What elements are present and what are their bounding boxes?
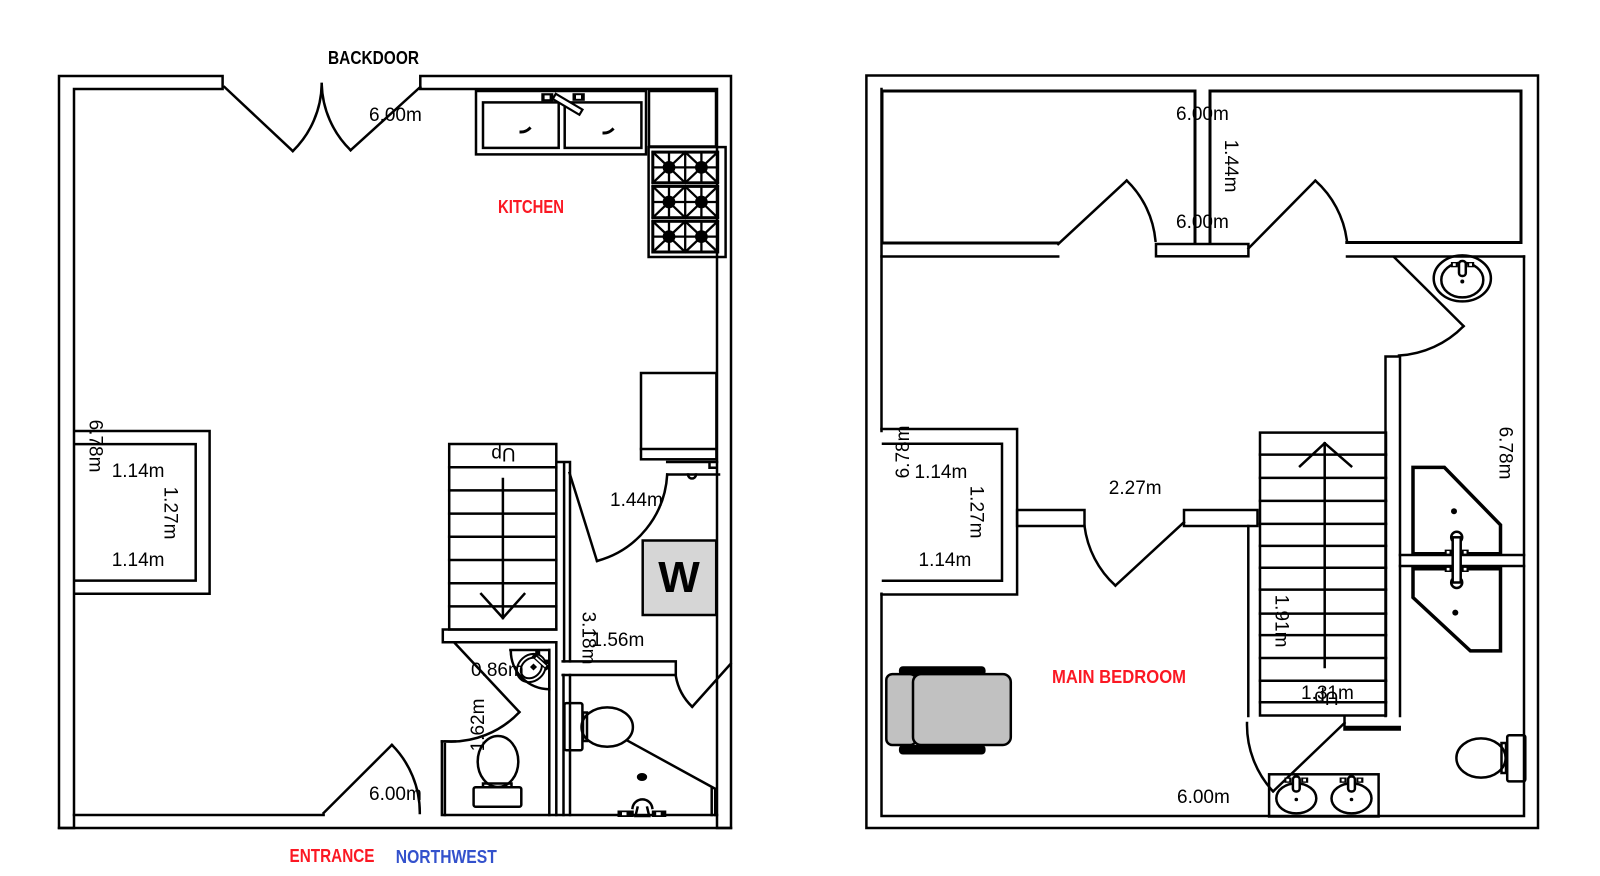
svg-text:0.86m: 0.86m bbox=[471, 660, 524, 681]
svg-text:6.78m: 6.78m bbox=[893, 426, 914, 479]
svg-text:Up: Up bbox=[491, 443, 515, 464]
svg-text:1.56m: 1.56m bbox=[592, 630, 645, 651]
svg-text:1.14m: 1.14m bbox=[919, 550, 972, 571]
svg-text:Up: Up bbox=[1314, 687, 1338, 708]
svg-text:6.00m: 6.00m bbox=[369, 784, 422, 805]
svg-text:6.78m: 6.78m bbox=[85, 420, 106, 473]
svg-text:NORTHWEST: NORTHWEST bbox=[396, 847, 497, 867]
svg-text:1.91m: 1.91m bbox=[1271, 595, 1292, 648]
svg-text:BACKDOOR: BACKDOOR bbox=[328, 48, 419, 68]
svg-text:ENTRANCE: ENTRANCE bbox=[290, 846, 375, 866]
svg-text:1.27m: 1.27m bbox=[966, 486, 987, 539]
svg-text:MAIN BEDROOM: MAIN BEDROOM bbox=[1052, 667, 1186, 687]
svg-text:1.14m: 1.14m bbox=[112, 461, 165, 482]
svg-text:W: W bbox=[658, 553, 700, 602]
svg-text:6.00m: 6.00m bbox=[369, 105, 422, 126]
svg-text:6.78m: 6.78m bbox=[1495, 427, 1516, 480]
svg-text:1.62m: 1.62m bbox=[468, 699, 489, 752]
svg-text:1.27m: 1.27m bbox=[160, 487, 181, 540]
svg-text:1.44m: 1.44m bbox=[1220, 140, 1241, 193]
svg-text:1.44m: 1.44m bbox=[610, 490, 663, 511]
svg-text:1.14m: 1.14m bbox=[915, 462, 968, 483]
svg-text:6.00m: 6.00m bbox=[1176, 212, 1229, 233]
svg-text:2.27m: 2.27m bbox=[1109, 478, 1162, 499]
svg-text:6.00m: 6.00m bbox=[1177, 787, 1230, 808]
svg-text:KITCHEN: KITCHEN bbox=[498, 197, 564, 217]
svg-text:1.14m: 1.14m bbox=[112, 550, 165, 571]
svg-text:6.00m: 6.00m bbox=[1176, 104, 1229, 125]
